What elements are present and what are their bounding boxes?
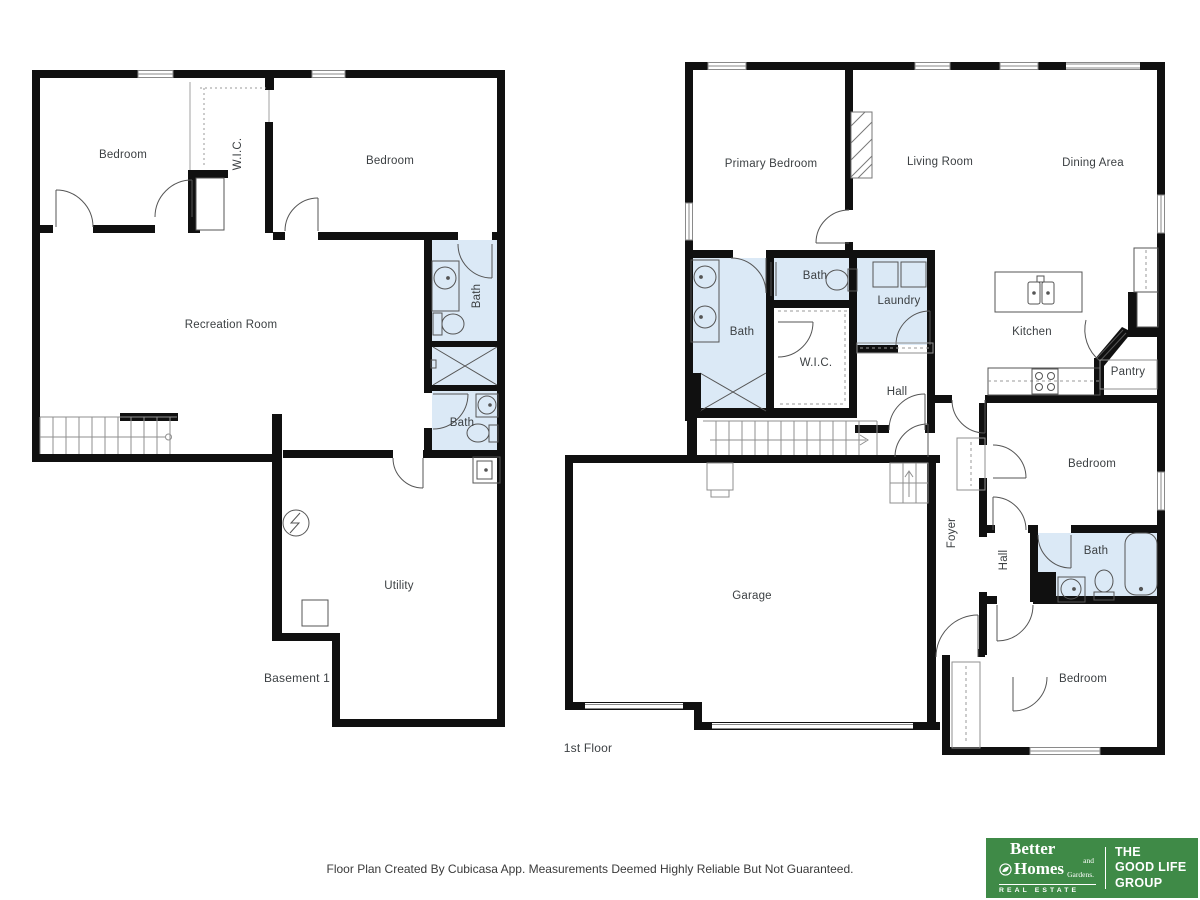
room-label-laundry: Laundry (878, 295, 921, 307)
basement-plan (32, 70, 505, 727)
room-label-wic-first: W.I.C. (800, 357, 833, 369)
room-label-bedroom-bottom: Bedroom (1059, 673, 1107, 685)
room-label-hall-right: Hall (998, 550, 1010, 571)
glg-line-1: THE (1115, 845, 1186, 861)
bhg-word-homes: Homes (1014, 862, 1064, 876)
glg-line-2: GOOD LIFE (1115, 860, 1186, 876)
room-label-bath-right: Bath (1084, 545, 1108, 557)
room-label-foyer: Foyer (946, 518, 958, 548)
room-label-bath-lower-basement: Bath (450, 417, 474, 429)
room-label-bath-wc: Bath (803, 270, 827, 282)
room-label-living-room: Living Room (907, 156, 973, 168)
room-label-bedroom-mid: Bedroom (1068, 458, 1116, 470)
bhg-wordmark: Better Homes and Gardens. REAL ESTATE (999, 842, 1096, 894)
room-label-bath-upper-basement: Bath (471, 284, 483, 308)
kitchen-island (995, 272, 1082, 312)
room-label-bedroom-left: Bedroom (99, 149, 147, 161)
room-label-kitchen: Kitchen (1012, 326, 1052, 338)
logo-divider (1105, 847, 1106, 889)
good-life-group-wordmark: THE GOOD LIFE GROUP (1115, 845, 1186, 892)
floor-plan-drawing (0, 0, 1200, 900)
bhg-word-gardens: and Gardens. (1064, 854, 1094, 882)
room-label-bedroom-right: Bedroom (366, 155, 414, 167)
bhg-leaf-icon (999, 863, 1012, 876)
first-floor-stairs (703, 421, 877, 455)
garage-landing (707, 463, 928, 503)
room-label-garage: Garage (732, 590, 772, 602)
glg-line-3: GROUP (1115, 876, 1186, 892)
brokerage-logo: Better Homes and Gardens. REAL ESTATE TH… (986, 838, 1198, 898)
basement-closet-box (196, 178, 224, 230)
garage-doors (585, 703, 913, 729)
basement-thin-walls (190, 82, 269, 170)
room-label-bath-primary: Bath (730, 326, 754, 338)
basement-title: Basement 1 (264, 671, 330, 685)
water-heater-icon (707, 463, 733, 490)
first-floor-title: 1st Floor (564, 741, 612, 755)
room-label-hall-center: Hall (887, 386, 908, 398)
room-label-utility: Utility (384, 580, 414, 592)
room-label-pantry: Pantry (1111, 366, 1145, 378)
room-label-dining-area: Dining Area (1062, 157, 1124, 169)
floor-plan-page: Bedroom W.I.C. Bedroom Recreation Room B… (0, 0, 1200, 900)
furnace-icon (302, 600, 328, 626)
disclaimer-text: Floor Plan Created By Cubicasa App. Meas… (180, 862, 1000, 876)
room-label-wic-basement: W.I.C. (232, 138, 244, 171)
room-label-recreation: Recreation Room (185, 319, 277, 331)
basement-stairs (40, 417, 177, 454)
fireplace-icon (851, 112, 872, 178)
utility-fixtures (283, 457, 500, 626)
room-label-primary-bedroom: Primary Bedroom (725, 158, 817, 170)
bhg-real-estate: REAL ESTATE (999, 887, 1096, 894)
bhg-divider-line (999, 884, 1096, 885)
